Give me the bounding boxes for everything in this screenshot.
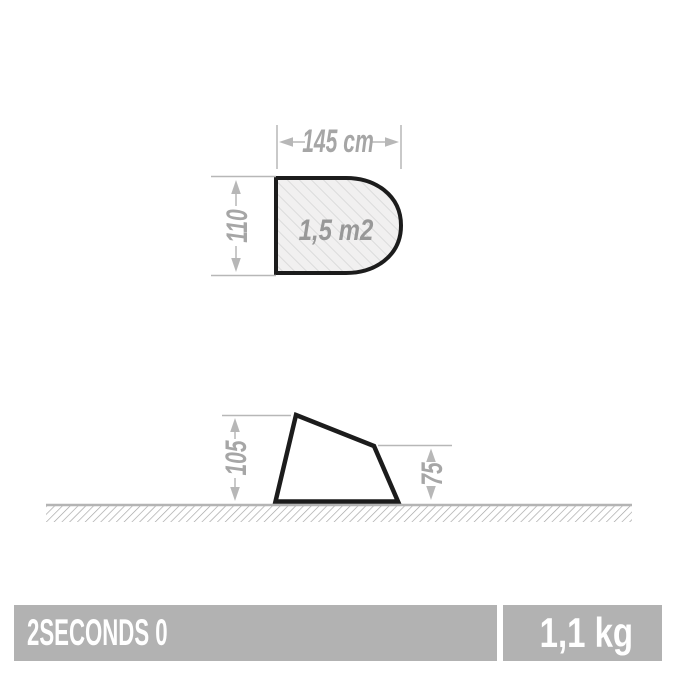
depth-label: 110 [222,209,254,243]
weight-badge: 1,1 kg [503,605,662,661]
height-right-label: 75 [417,462,449,486]
top-view-diagram: 1,5 m2 145 cm 110 [211,122,401,275]
arrow-left-icon [279,137,293,147]
dimension-diagram-svg: 1,5 m2 145 cm 110 [0,0,675,675]
product-name-label: 2SECONDS 0 [27,605,168,661]
product-spec-diagram: 1,5 m2 145 cm 110 [0,0,675,675]
arrow-down-icon [230,487,240,501]
arrow-right-icon [385,137,399,147]
arrow-down-icon [426,486,436,500]
area-label: 1,5 m2 [299,212,374,246]
ground-hatch [46,506,632,522]
tent-profile-shape [276,415,399,502]
arrow-up-icon [230,418,240,432]
weight-label: 1,1 kg [540,605,633,661]
height-left-label: 105 [221,440,253,476]
product-name-bar: 2SECONDS 0 [14,605,497,661]
arrow-up-icon [426,449,436,463]
arrow-down-icon [231,258,241,272]
arrow-up-icon [231,180,241,194]
side-view-diagram: 105 75 [46,415,632,522]
width-label: 145 cm [302,122,374,159]
